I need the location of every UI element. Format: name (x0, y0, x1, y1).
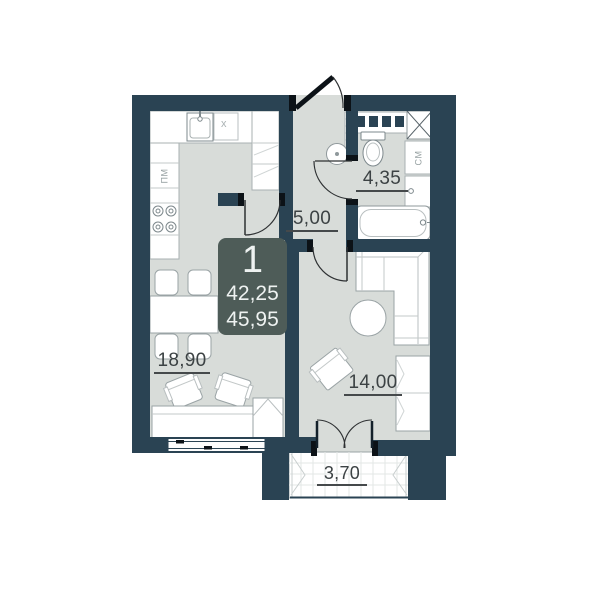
bathtub (356, 206, 430, 240)
toilet (361, 132, 385, 166)
cabinet-mark: x (221, 118, 227, 130)
floor-plan-drawing (0, 0, 600, 600)
shaft-box (407, 111, 432, 139)
kitchen-tall-unit (252, 111, 279, 190)
area-label-living-room: 14,00 (344, 373, 402, 396)
unit-area-lower: 45,95 (226, 307, 279, 333)
dishwasher-label: ПМ (149, 163, 179, 188)
vent-block (352, 112, 408, 133)
area-label-kitchen-living: 18,90 (154, 351, 210, 374)
window (168, 439, 265, 451)
area-label-hallway: 5,00 (286, 209, 338, 232)
kitchen-counter-left (150, 143, 179, 259)
area-label-balcony: 3,70 (317, 464, 367, 486)
floor-plan: 18,90 5,00 4,35 14,00 3,70 ПМ СМ x 1 42,… (0, 0, 600, 600)
unit-area-upper: 42,25 (226, 281, 279, 307)
unit-number: 1 (242, 241, 263, 281)
area-label-bathroom: 4,35 (356, 169, 408, 192)
bath-sink (405, 176, 431, 207)
unit-info-badge: 1 42,25 45,95 (218, 238, 287, 335)
washing-machine-label: СМ (405, 141, 431, 174)
dining-table (150, 296, 218, 333)
coffee-table (350, 300, 386, 336)
kitchen-sink (187, 111, 213, 141)
